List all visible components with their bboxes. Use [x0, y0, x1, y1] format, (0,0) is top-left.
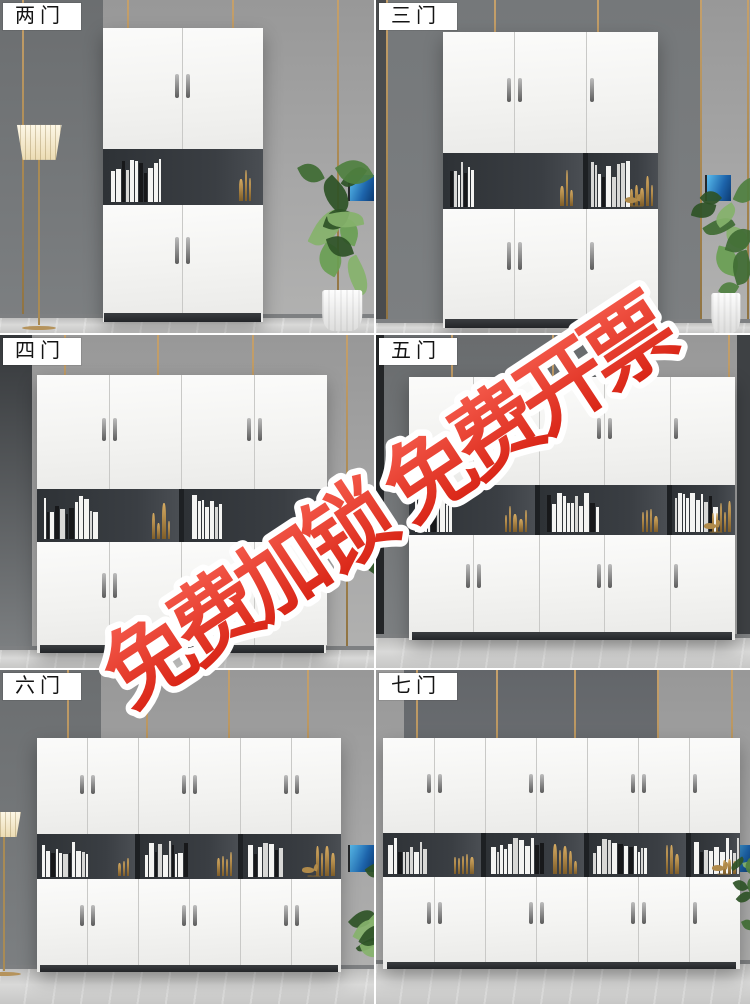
door-handle-icon: [597, 564, 601, 588]
door-handle-icon: [91, 775, 95, 794]
shelf-section: [443, 153, 583, 209]
book-spine: [575, 496, 578, 533]
cabinet-plinth: [387, 962, 736, 969]
shelf-section: [383, 833, 481, 877]
book-spine: [148, 168, 153, 201]
cabinet-door: [605, 535, 670, 632]
book-spines: [591, 157, 629, 206]
product-panel-five-door[interactable]: 五门: [376, 335, 750, 668]
book-spine: [55, 506, 59, 539]
book-spine: [513, 838, 518, 874]
cabinet-door: [383, 877, 434, 962]
door-handle-icon: [175, 74, 179, 98]
door-handle-icon: [529, 902, 533, 923]
door-handle-icon: [258, 573, 262, 599]
brass-bottle: [559, 850, 561, 874]
brass-bottle: [123, 861, 125, 876]
panel-label-plate: 四门: [3, 338, 81, 365]
door-handle-icon: [193, 905, 197, 927]
cabinet-door-row: [37, 738, 341, 834]
cabinet-door: [639, 738, 690, 833]
door-handle-icon: [674, 418, 678, 440]
book-spine: [72, 842, 75, 876]
potted-plant: [348, 844, 374, 964]
door-handle-icon: [631, 902, 635, 923]
door-handle-icon: [80, 775, 84, 794]
book-spine: [82, 852, 85, 876]
wall-dark-section: [0, 335, 32, 650]
brass-bottle: [454, 857, 456, 874]
book-spine: [149, 843, 154, 877]
cabinet-door: [88, 738, 139, 834]
plant-leaf: [297, 159, 325, 188]
plant-leaf: [364, 857, 374, 883]
brass-bottle: [513, 514, 517, 532]
book-spine: [504, 849, 507, 875]
cabinet-door: [435, 738, 486, 833]
door-handle-icon: [102, 418, 106, 441]
product-panel-four-door[interactable]: 四门: [0, 335, 374, 668]
wall-corner-shadow: [376, 335, 384, 638]
horse-figurine: [276, 527, 292, 539]
book-spine: [410, 847, 413, 874]
book-spines: [547, 488, 615, 532]
shelf-section: [135, 834, 238, 878]
book-spine: [122, 161, 125, 202]
book-spine: [624, 846, 628, 874]
potted-plant: [299, 145, 374, 331]
brass-bottle: [553, 844, 557, 874]
book-spine: [51, 853, 55, 876]
cabinet-door: [540, 377, 605, 485]
brass-bottle: [728, 501, 731, 532]
cabinet-door-row: [37, 879, 341, 966]
book-spine: [437, 496, 439, 533]
book-spine: [69, 853, 71, 877]
brass-bottle: [321, 853, 323, 876]
cabinet-door: [409, 377, 474, 485]
potted-plant: [348, 462, 374, 622]
cabinet-door: [486, 738, 537, 833]
book-spine: [675, 498, 677, 532]
book-spine: [263, 843, 268, 876]
book-spines: [593, 836, 646, 875]
brass-bottle: [470, 857, 474, 874]
door-handle-icon: [284, 775, 288, 794]
cabinet: [37, 375, 326, 653]
brass-bottle: [118, 863, 121, 876]
brass-bottle: [239, 179, 243, 201]
book-spine: [50, 512, 54, 539]
brass-bottle: [458, 858, 460, 874]
book-spine: [46, 851, 50, 876]
cabinet-door: [515, 209, 587, 318]
door-handle-icon: [247, 418, 251, 441]
panel-label: 七门: [379, 673, 441, 700]
plant-leaf: [369, 579, 374, 609]
door-handle-icon: [186, 237, 190, 264]
book-spine: [567, 503, 570, 532]
open-shelf: [409, 485, 735, 535]
book-spine: [47, 512, 49, 539]
book-spine: [618, 844, 623, 875]
book-spine: [398, 852, 402, 874]
door-handle-icon: [631, 774, 635, 793]
door-handle-icon: [438, 774, 442, 793]
product-panel-seven-door[interactable]: 七门: [376, 670, 750, 1004]
cabinet-door-row: [383, 738, 739, 833]
wall-corner-shadow: [737, 335, 750, 638]
book-spines: [192, 493, 269, 539]
brass-bottle: [325, 846, 329, 876]
book-spine: [202, 500, 204, 539]
door-handle-icon: [427, 774, 431, 793]
open-shelf: [37, 489, 326, 542]
panel-label-plate: 六门: [3, 673, 81, 700]
door-handle-icon: [693, 902, 697, 923]
book-spine: [60, 509, 65, 539]
brass-bottle: [642, 512, 644, 532]
door-handle-icon: [247, 573, 251, 599]
floor-lamp-pole: [38, 157, 40, 325]
book-spines: [388, 836, 441, 875]
brass-bottle: [315, 514, 317, 539]
door-handle-icon: [182, 775, 186, 794]
cabinet-door: [110, 375, 183, 489]
brass-bottle: [245, 170, 247, 201]
brass-bottle: [222, 856, 224, 876]
panel-label-plate: 三门: [379, 3, 457, 30]
book-spine: [638, 852, 640, 875]
book-spine: [491, 847, 496, 874]
book-spine: [678, 493, 682, 532]
book-spine: [63, 854, 68, 877]
door-handle-icon: [674, 564, 678, 588]
book-spine: [519, 840, 524, 874]
book-spine: [56, 849, 58, 876]
brass-bottle: [249, 178, 251, 202]
book-spine: [584, 493, 589, 532]
cabinet-door: [474, 535, 539, 632]
cabinet-door: [110, 542, 183, 645]
brass-bottle: [162, 503, 166, 538]
book-spine: [130, 160, 134, 202]
book-spine: [414, 852, 419, 875]
cabinet: [103, 28, 263, 322]
book-spine: [69, 508, 74, 539]
book-spine: [597, 846, 601, 875]
open-shelf: [443, 153, 658, 209]
door-handle-icon: [590, 242, 594, 269]
book-spine: [86, 854, 88, 876]
book-spine: [591, 162, 594, 207]
door-handle-icon: [507, 78, 511, 102]
brass-ornaments: [202, 844, 231, 876]
panel-label-plate: 七门: [379, 673, 457, 700]
book-spine: [158, 844, 162, 876]
book-spine: [135, 161, 138, 202]
cabinet-plinth: [412, 632, 732, 640]
cabinet-door: [443, 32, 515, 153]
cabinet-door-row: [103, 205, 263, 314]
cabinet: [443, 32, 658, 328]
product-panel-six-door[interactable]: 六门: [0, 670, 374, 1004]
plant-leaf: [741, 918, 750, 933]
cabinet-door-row: [409, 535, 735, 632]
door-handle-icon: [466, 418, 470, 440]
book-spine: [154, 163, 158, 202]
brass-ornaments: [203, 161, 251, 201]
brass-bottle: [300, 512, 303, 538]
book-spine: [449, 503, 452, 533]
book-spine: [500, 845, 503, 874]
book-spine: [169, 841, 171, 877]
door-handle-icon: [284, 905, 288, 927]
book-spine: [155, 852, 157, 877]
cabinet-plinth: [40, 965, 338, 972]
brass-bottle: [466, 854, 468, 874]
door-handle-icon: [91, 905, 95, 927]
book-spine: [139, 163, 143, 202]
marble-floor: [0, 969, 374, 1004]
cabinet-door: [486, 877, 537, 962]
book-spine: [464, 173, 467, 207]
book-spine: [406, 852, 409, 874]
shelf-section: [409, 485, 535, 535]
cabinet-door: [671, 377, 735, 485]
book-spine: [269, 844, 274, 876]
book-spine: [593, 853, 596, 875]
book-spine: [279, 848, 283, 876]
book-spine: [454, 171, 457, 206]
brass-ornaments: [445, 842, 474, 874]
product-panel-three-door[interactable]: 三门: [376, 0, 750, 333]
book-spines: [491, 836, 544, 875]
book-spine: [641, 848, 643, 875]
book-spine: [258, 847, 262, 877]
book-spine: [602, 177, 605, 207]
book-spine: [42, 845, 45, 876]
door-handle-icon: [642, 774, 646, 793]
book-spine: [198, 501, 201, 539]
book-spine: [471, 170, 474, 207]
brass-bottle: [560, 186, 564, 206]
shelf-section: [179, 489, 326, 542]
book-spine: [563, 496, 566, 532]
brass-bottle: [230, 852, 232, 876]
brass-bottle: [127, 858, 129, 876]
cabinet: [383, 738, 739, 969]
book-spine: [215, 507, 218, 539]
door-handle-icon: [529, 774, 533, 793]
book-spine: [175, 854, 177, 877]
door-handle-icon: [590, 78, 594, 102]
horse-figurine: [704, 520, 720, 532]
cabinet-door: [182, 542, 255, 645]
cabinet-door: [587, 209, 658, 318]
book-spine: [612, 177, 616, 206]
book-spine: [446, 505, 448, 533]
cabinet-door: [605, 377, 670, 485]
cabinet-door: [190, 738, 241, 834]
door-handle-icon: [427, 902, 431, 923]
cabinet-door-row: [103, 28, 263, 149]
door-handle-icon: [80, 905, 84, 927]
cabinet-door: [255, 375, 327, 489]
cabinet-door: [588, 738, 639, 833]
shelf-section: [481, 833, 584, 877]
book-spine: [602, 839, 607, 875]
book-spine: [458, 175, 460, 207]
book-spine: [394, 838, 397, 875]
book-spine: [192, 495, 197, 539]
brass-bottle: [570, 190, 573, 206]
book-spine: [79, 496, 83, 539]
book-spine: [388, 845, 393, 874]
brass-ornaments: [127, 501, 170, 539]
brass-bottle: [525, 510, 527, 532]
door-handle-icon: [507, 242, 511, 269]
door-handle-icon: [295, 905, 299, 927]
shelf-section: [37, 489, 179, 542]
cabinet-door: [37, 542, 110, 645]
cabinet: [409, 377, 735, 640]
book-spine: [525, 846, 530, 875]
door-handle-icon: [113, 573, 117, 599]
cabinet-door: [435, 877, 486, 962]
brass-bottle: [650, 509, 652, 532]
cabinet-door-row: [383, 877, 739, 962]
cabinet: [37, 738, 341, 972]
book-spine: [612, 843, 617, 874]
book-spines: [145, 837, 198, 876]
book-spine: [535, 845, 539, 875]
brass-bottle: [226, 859, 228, 876]
brass-bottle: [305, 516, 308, 539]
cabinet-door: [588, 877, 639, 962]
cabinet-door: [292, 879, 342, 966]
door-handle-icon: [477, 418, 481, 440]
book-spine: [701, 494, 703, 532]
door-handle-icon: [438, 902, 442, 923]
door-handle-icon: [597, 418, 601, 440]
book-spine: [461, 162, 463, 207]
book-spine: [579, 506, 583, 532]
book-spine: [44, 498, 46, 539]
book-spine: [608, 840, 611, 874]
book-spine: [683, 494, 685, 532]
book-spine: [450, 171, 453, 206]
cabinet-door: [37, 879, 88, 966]
book-spines: [44, 493, 121, 539]
shelf-section: [103, 149, 263, 205]
book-spine: [418, 493, 420, 532]
book-spine: [126, 170, 129, 202]
book-spine: [440, 496, 445, 532]
brass-bottle: [574, 861, 577, 874]
book-spines: [111, 153, 197, 202]
book-spine: [163, 855, 168, 877]
book-spine: [590, 503, 595, 532]
product-image-grid: 两门 三门 四门 五门 六门 七门: [0, 0, 750, 1000]
cabinet-door: [103, 205, 183, 314]
book-spine: [557, 493, 562, 532]
door-handle-icon: [182, 905, 186, 927]
book-spine: [423, 849, 427, 874]
book-spine: [540, 843, 544, 874]
panel-label-plate: 五门: [379, 338, 457, 365]
brass-bottle: [168, 521, 170, 539]
door-handle-icon: [693, 774, 697, 793]
horse-figurine: [712, 862, 728, 874]
book-spine: [145, 855, 148, 877]
floor-lamp-pole: [3, 834, 5, 971]
book-spine: [254, 854, 257, 877]
door-handle-icon: [518, 78, 522, 102]
brass-bottle: [563, 846, 567, 874]
brass-bottle: [675, 854, 679, 874]
book-spines: [42, 837, 95, 876]
gold-trim-line: [386, 0, 388, 323]
brass-bottle: [310, 513, 313, 539]
shelf-section: [584, 833, 687, 877]
product-panel-two-door[interactable]: 两门: [0, 0, 374, 333]
shelf-section: [535, 485, 666, 535]
cabinet-door: [139, 738, 190, 834]
horse-figurine: [302, 864, 318, 876]
open-shelf: [37, 834, 341, 878]
door-handle-icon: [193, 775, 197, 794]
book-spine: [634, 846, 637, 875]
door-handle-icon: [175, 237, 179, 264]
book-spine: [552, 504, 556, 532]
panel-label: 三门: [379, 3, 441, 30]
panel-label: 两门: [3, 3, 65, 30]
book-spine: [571, 503, 574, 532]
cabinet-door: [183, 205, 262, 314]
book-spine: [178, 853, 183, 877]
cabinet-door: [37, 375, 110, 489]
floor-lamp-shade: [15, 125, 64, 160]
panel-label: 五门: [379, 338, 441, 365]
door-handle-icon: [295, 775, 299, 794]
book-spine: [59, 853, 62, 876]
door-handle-icon: [540, 902, 544, 923]
cabinet-door: [443, 209, 515, 318]
cabinet-plinth: [40, 645, 323, 653]
brass-bottle: [670, 845, 673, 874]
brass-bottle: [666, 845, 668, 874]
book-spines: [450, 157, 526, 206]
brass-bottle: [462, 856, 464, 874]
book-spine: [210, 501, 214, 540]
plant-leaf: [733, 172, 750, 208]
book-spine: [704, 850, 708, 874]
door-handle-icon: [113, 418, 117, 441]
book-spine: [617, 164, 620, 207]
shelf-section: [583, 153, 658, 209]
book-spine: [497, 852, 499, 874]
brass-bottle: [724, 512, 726, 532]
door-handle-icon: [258, 418, 262, 441]
panel-label: 四门: [3, 338, 65, 365]
book-spine: [93, 512, 98, 539]
cabinet-door: [241, 738, 292, 834]
shelf-section: [37, 834, 135, 878]
marble-floor: [376, 638, 750, 668]
book-spine: [431, 498, 436, 532]
book-spine: [116, 169, 121, 202]
